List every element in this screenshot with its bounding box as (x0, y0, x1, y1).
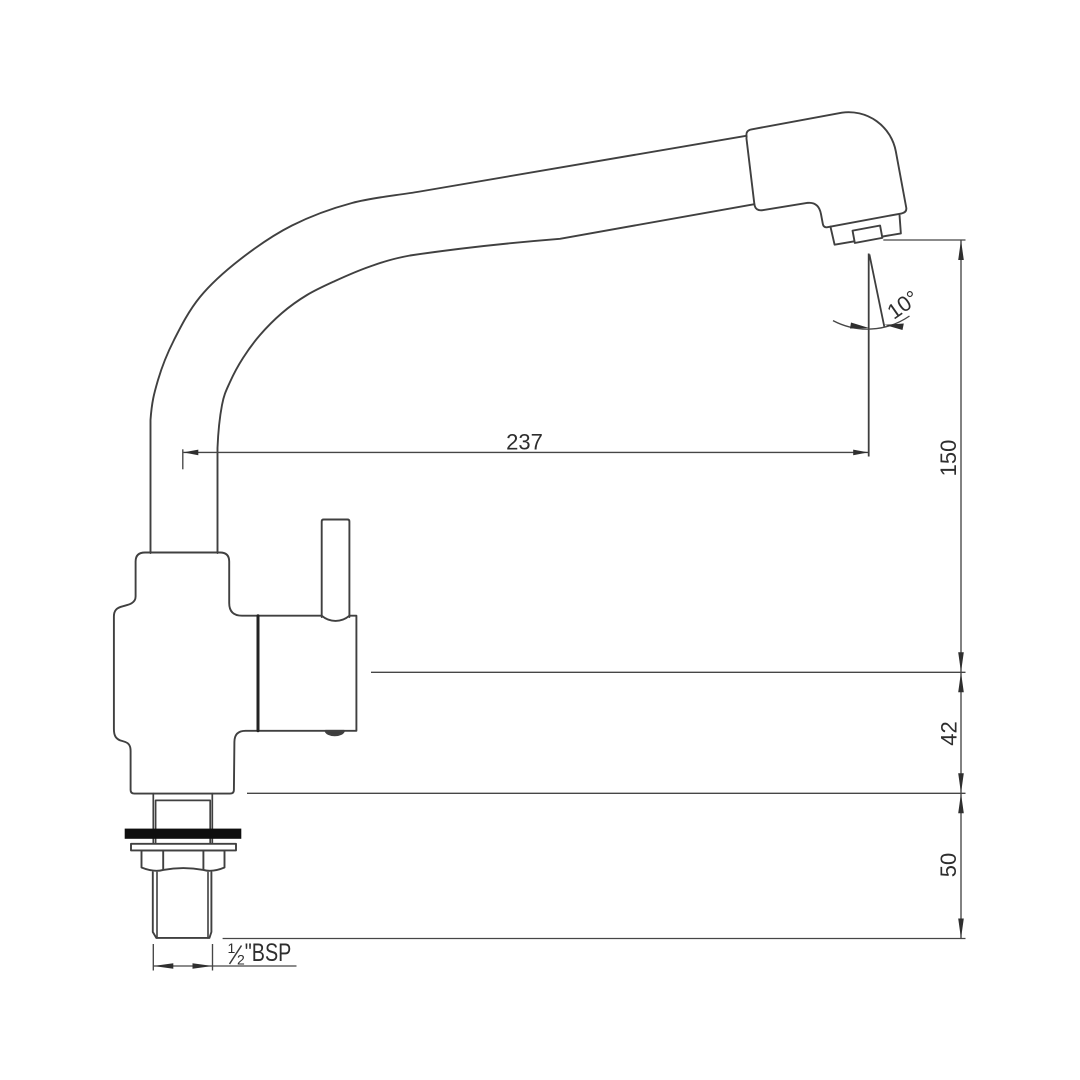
svg-text:50: 50 (936, 853, 961, 877)
svg-text:237: 237 (506, 429, 543, 454)
svg-text:1: 1 (228, 940, 236, 956)
svg-text:2: 2 (237, 952, 245, 968)
svg-text:"BSP: "BSP (245, 939, 291, 967)
svg-text:10°: 10° (883, 286, 923, 324)
svg-text:150: 150 (936, 440, 961, 477)
svg-text:42: 42 (937, 721, 962, 745)
